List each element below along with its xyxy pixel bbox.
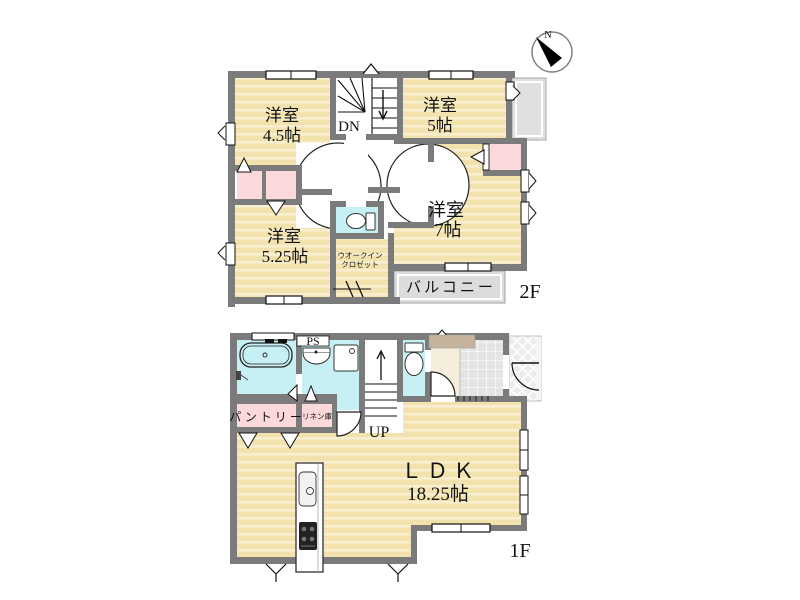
toilet-fixture-2f (347, 213, 376, 230)
floor-1f-plan: パントリー リネン庫 PS UP ＬＤＫ 18.25帖 1F (229, 330, 541, 582)
entrance-door-opening (503, 355, 509, 389)
kitchen-island (296, 463, 323, 572)
toilet-bowl-icon (347, 214, 366, 229)
floor-2f-plan: 洋室 4.5帖 洋室 5帖 洋室 7帖 洋室 5.25帖 DN ウオークイン ク… (218, 64, 546, 307)
toilet-door-opening (425, 350, 431, 372)
toilet-tank-icon (366, 213, 375, 230)
faucet-icon (307, 488, 314, 495)
terrace-door (506, 82, 514, 100)
rooms-1f (237, 336, 541, 558)
shutter-marker (266, 564, 286, 582)
floor-2f-label: 2F (519, 281, 540, 303)
pipe-space-label: PS (306, 334, 319, 348)
washroom-floor-ext (337, 394, 359, 410)
room-7-size: 7帖 (435, 220, 462, 240)
floor-1f-label: 1F (509, 540, 530, 562)
roof-terrace (512, 78, 546, 140)
shower-icon (236, 371, 241, 380)
room-5-size: 5帖 (427, 116, 453, 135)
closet-b-2f (266, 171, 296, 199)
washing-machine-icon (334, 345, 358, 371)
closet-a-2f (237, 171, 262, 199)
floorplan-drawing: N (0, 0, 800, 600)
window-marker (218, 246, 225, 260)
ldk-floor-left (237, 433, 417, 558)
ldk-name: ＬＤＫ (401, 459, 479, 483)
closet-right-2f (488, 144, 521, 170)
wic-label-line2: クロゼット (341, 259, 379, 269)
stairs-up-label: UP (369, 424, 390, 441)
window (521, 202, 529, 224)
window-marker (529, 205, 536, 221)
floorplan-page: N (0, 0, 800, 600)
walkin-closet-floor (336, 239, 388, 300)
wic-label-line1: ウオークイン (338, 251, 383, 260)
entrance-genkan (460, 340, 503, 397)
compass-north-label: N (544, 30, 551, 41)
compass: N (532, 30, 572, 72)
toilet-tank-icon (405, 343, 423, 352)
window (226, 243, 235, 265)
balcony-label: バルコニー (406, 280, 496, 296)
toilet-bowl-icon (405, 353, 423, 376)
window-marker (218, 126, 225, 140)
shutter-marker (388, 564, 408, 582)
room-525-name: 洋室 (267, 227, 301, 246)
window (226, 123, 235, 145)
room-525-size: 5.25帖 (262, 247, 309, 266)
corridor-2f (344, 134, 368, 201)
pantry-label: パントリー (229, 410, 305, 424)
stairs-down-label: DN (338, 119, 360, 135)
roof-vent-marker (363, 64, 379, 74)
shoe-cabinet (429, 335, 475, 348)
room-45-name: 洋室 (265, 106, 299, 125)
room-45-size: 4.5帖 (263, 126, 301, 145)
window (521, 170, 529, 192)
bathroom-window (252, 333, 294, 340)
linen-label: リネン庫 (302, 411, 332, 421)
room-7-name: 洋室 (428, 200, 464, 220)
window-marker (529, 173, 536, 189)
ldk-size: 18.25帖 (407, 483, 469, 505)
room-5-name: 洋室 (423, 96, 457, 115)
room-7-floor-ext (394, 228, 434, 264)
